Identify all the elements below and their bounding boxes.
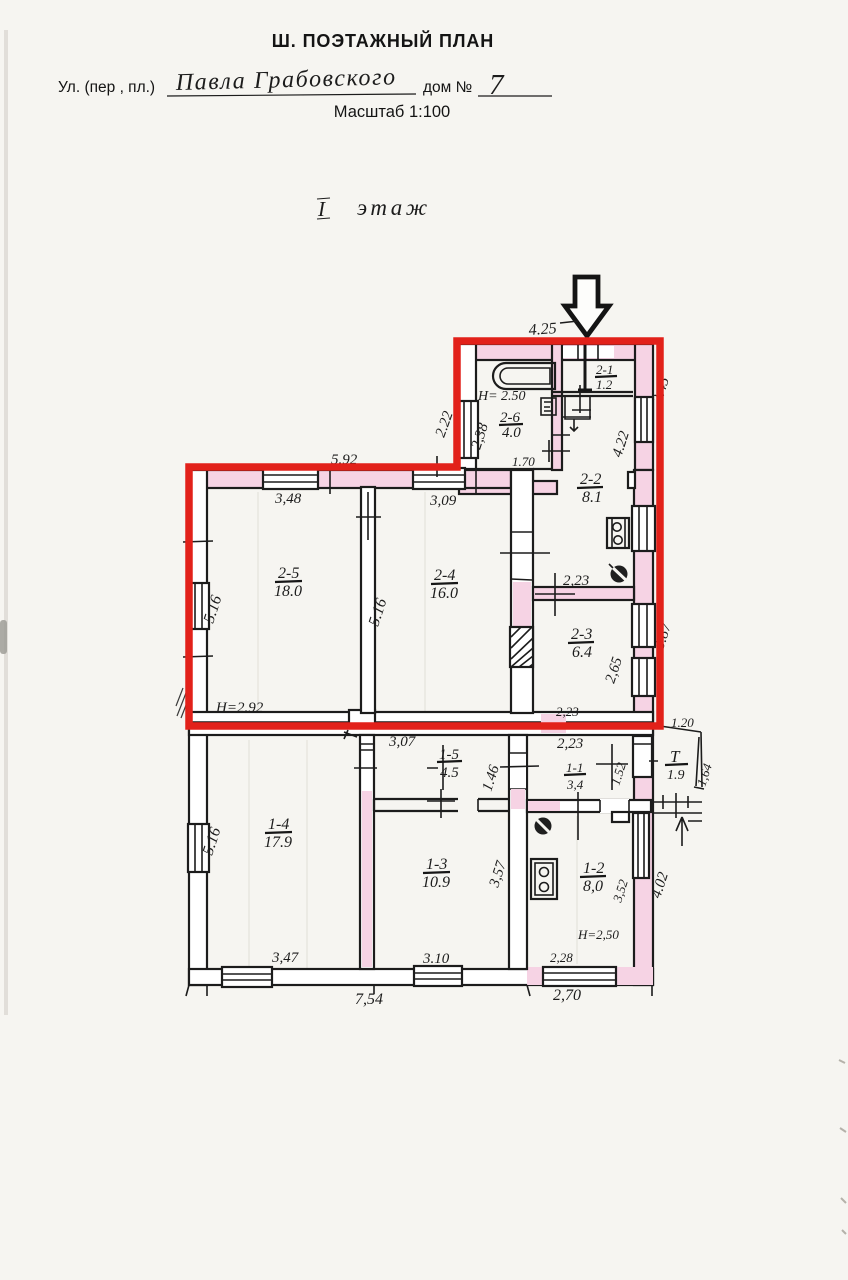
svg-text:4.5: 4.5 bbox=[440, 765, 459, 781]
svg-text:2-3: 2-3 bbox=[571, 626, 592, 643]
svg-text:10.9: 10.9 bbox=[422, 874, 450, 891]
svg-text:3.10: 3.10 bbox=[422, 951, 450, 967]
svg-text:7,54: 7,54 bbox=[355, 991, 383, 1008]
svg-text:1-1: 1-1 bbox=[566, 760, 583, 775]
svg-text:Масштаб 1:100: Масштаб 1:100 bbox=[334, 103, 450, 121]
svg-text:H=2,50: H=2,50 bbox=[577, 927, 619, 942]
svg-text:1.2: 1.2 bbox=[596, 377, 613, 392]
svg-text:2-2: 2-2 bbox=[580, 471, 601, 488]
svg-text:1-3: 1-3 bbox=[426, 856, 447, 873]
svg-text:3,4: 3,4 bbox=[566, 777, 584, 792]
svg-text:1.20: 1.20 bbox=[671, 715, 694, 730]
svg-text:3,47: 3,47 bbox=[271, 950, 300, 966]
svg-text:3,48: 3,48 bbox=[274, 491, 302, 507]
svg-text:Ул. (пер , пл.): Ул. (пер , пл.) bbox=[58, 79, 155, 96]
svg-text:T: T bbox=[670, 747, 681, 766]
svg-text:2,28: 2,28 bbox=[550, 950, 573, 965]
svg-text:H=2.92: H=2.92 bbox=[215, 700, 264, 716]
svg-text:8,0: 8,0 bbox=[583, 878, 603, 895]
svg-text:2,70: 2,70 bbox=[553, 987, 581, 1004]
svg-text:16.0: 16.0 bbox=[430, 585, 458, 602]
svg-text:3,09: 3,09 bbox=[429, 493, 457, 509]
svg-text:1.9: 1.9 bbox=[667, 768, 685, 783]
svg-text:4.25: 4.25 bbox=[528, 320, 557, 339]
svg-text:дом №: дом № bbox=[423, 79, 473, 96]
svg-text:1-2: 1-2 bbox=[583, 860, 604, 877]
svg-text:3,07: 3,07 bbox=[388, 734, 417, 750]
svg-text:4.0: 4.0 bbox=[502, 425, 521, 441]
svg-text:2,23: 2,23 bbox=[563, 573, 589, 589]
svg-text:Ш. ПОЭТАЖНЫЙ ПЛАН: Ш. ПОЭТАЖНЫЙ ПЛАН bbox=[272, 30, 494, 51]
svg-text:1-4: 1-4 bbox=[268, 816, 289, 833]
svg-text:2-4: 2-4 bbox=[434, 567, 455, 584]
svg-text:1.70: 1.70 bbox=[512, 454, 535, 469]
svg-text:H= 2.50: H= 2.50 bbox=[477, 389, 526, 404]
svg-text:2,23: 2,23 bbox=[556, 704, 579, 719]
svg-text:2,23: 2,23 bbox=[557, 736, 583, 752]
svg-text:17.9: 17.9 bbox=[264, 834, 292, 851]
svg-text:этаж: этаж bbox=[357, 195, 431, 220]
svg-text:2-1: 2-1 bbox=[596, 362, 613, 377]
svg-text:I: I bbox=[317, 197, 326, 221]
svg-text:18.0: 18.0 bbox=[274, 583, 302, 600]
svg-text:6.4: 6.4 bbox=[572, 644, 592, 661]
svg-text:8.1: 8.1 bbox=[582, 489, 602, 506]
svg-text:2-5: 2-5 bbox=[278, 565, 299, 582]
